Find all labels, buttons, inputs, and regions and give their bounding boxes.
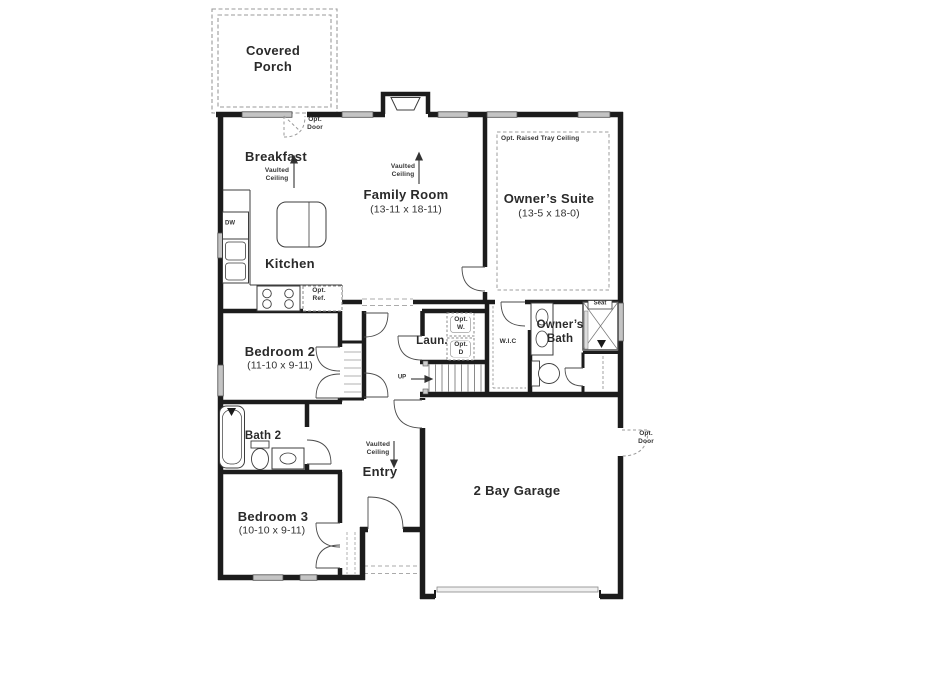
stove — [257, 286, 300, 311]
floor-plan-canvas — [0, 0, 933, 691]
cased-opening — [362, 299, 413, 306]
optional-patio-lines — [364, 566, 420, 574]
garage-door — [435, 587, 600, 598]
bath2-toilet — [251, 441, 269, 470]
bath2-fixtures — [220, 406, 305, 470]
vaulted-arrow-entry-icon — [391, 441, 397, 467]
laundry-appliances — [447, 313, 474, 360]
vaulted-arrow-family-icon — [416, 153, 422, 184]
bath2-vanity — [272, 448, 304, 469]
wic-shelving — [493, 306, 526, 388]
tray-ceiling-outline — [497, 132, 609, 290]
owners-toilet — [532, 361, 560, 386]
bathtub — [220, 406, 245, 468]
kitchen-island — [277, 202, 326, 247]
shower-seat — [588, 301, 612, 310]
kitchen-fixtures — [223, 190, 343, 311]
optional-refrigerator-box — [303, 286, 342, 311]
staircase — [423, 361, 481, 394]
closet-shelves — [344, 352, 361, 392]
dishwasher-box — [223, 212, 249, 239]
double-vanity — [531, 303, 553, 355]
entry-closet — [347, 532, 355, 574]
exterior-walls — [216, 112, 623, 599]
shower — [583, 301, 618, 351]
owners-bath-fixtures — [531, 301, 618, 391]
fireplace — [383, 94, 428, 114]
vaulted-arrow-breakfast-icon — [291, 156, 297, 188]
porch-outline — [212, 9, 337, 113]
floor-plan: Covered Porch Breakfast Family Room (13-… — [0, 0, 933, 691]
